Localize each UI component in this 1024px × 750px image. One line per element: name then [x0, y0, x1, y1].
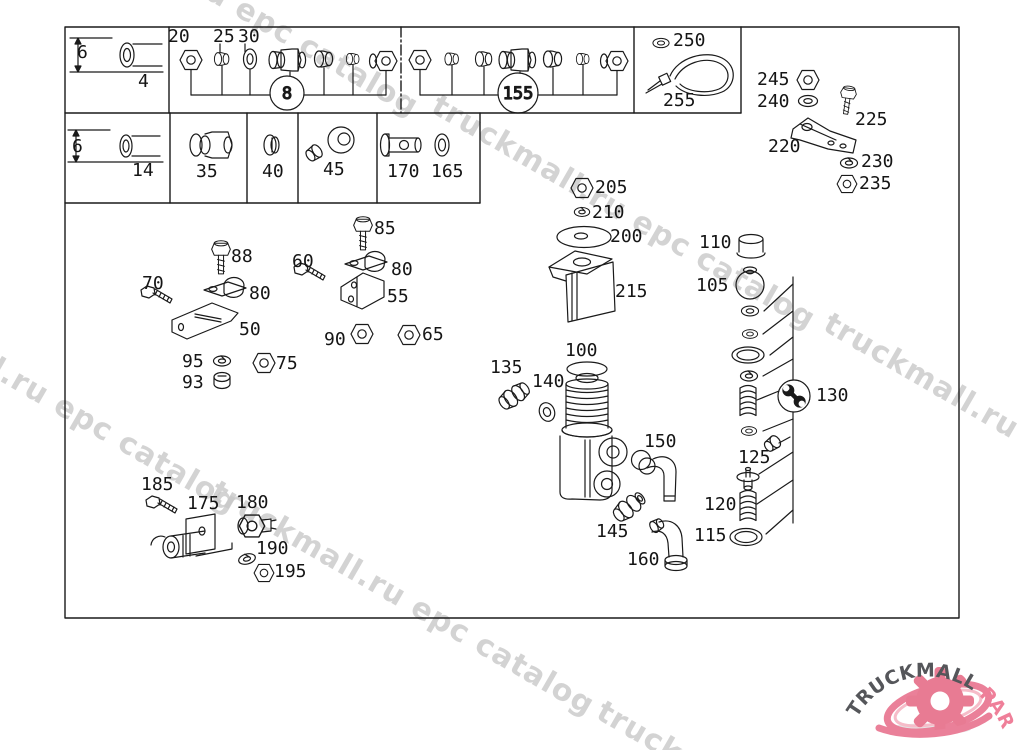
fitting-cells: [190, 0, 449, 163]
wrench-icon: [780, 382, 809, 411]
valve-175-cluster: [146, 496, 276, 582]
tube-4-cell: [70, 38, 163, 72]
badge-155: 155: [503, 84, 534, 104]
fitting-135-140: [496, 379, 558, 423]
repair-kit-column: [730, 235, 810, 546]
parts-catalog-page: truckmall.ru epc catalogtruckmall.ru epc…: [0, 0, 1024, 750]
bracket-220-cluster: [791, 71, 858, 193]
bracket-215-stack: [549, 179, 615, 323]
bracket-50-cluster: [141, 217, 420, 389]
truckmall-logo: TRUCKMALL PARTS: [843, 638, 1019, 748]
cable-tie-cell: [646, 38, 733, 95]
valve-100: [560, 362, 627, 500]
tube-14-cell: [68, 130, 163, 162]
badge-8: 8: [282, 84, 292, 104]
elbow-fittings: [610, 451, 687, 571]
